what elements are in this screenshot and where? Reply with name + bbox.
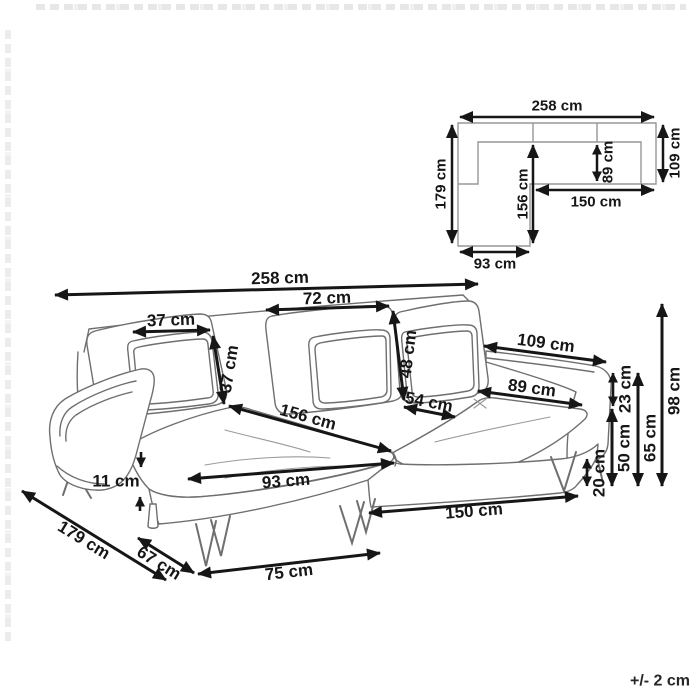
plan-dim-right-depth: 109 cm bbox=[663, 125, 684, 182]
plan-dim-left-depth: 179 cm bbox=[433, 125, 453, 243]
dim-back-cushion-width: 72 cm bbox=[266, 288, 389, 310]
dim-label-pillow-width: 37 cm bbox=[147, 310, 196, 331]
diagram-svg: 258 cm 72 cm 37 cm 37 cm 48 cm 54 cm bbox=[0, 0, 700, 700]
dim-armrest-height: 65 cm bbox=[638, 373, 660, 486]
plan-dim-seat-depth: 89 cm bbox=[597, 141, 617, 184]
dim-label-seat-height: 50 cm bbox=[615, 424, 634, 472]
dim-label-total-width: 258 cm bbox=[251, 268, 309, 289]
dim-label-chaise-side-depth: 67 cm bbox=[134, 542, 185, 584]
dim-front-leg-span: 75 cm bbox=[198, 553, 380, 584]
plan-dim-total-width: 258 cm bbox=[460, 98, 654, 118]
dim-label-base-front-width: 150 cm bbox=[445, 499, 504, 522]
middle-hairpin-legs bbox=[340, 499, 375, 543]
plan-label-chaise-length: 156 cm bbox=[515, 169, 532, 220]
plan-dim-chaise-width: 93 cm bbox=[460, 252, 529, 273]
dim-label-armrest-height: 65 cm bbox=[641, 414, 660, 462]
plan-label-left-depth: 179 cm bbox=[433, 159, 450, 210]
dim-total-depth: 179 cm bbox=[22, 491, 166, 580]
chaise-hairpin-legs bbox=[196, 516, 230, 566]
chaise-cylinder-leg bbox=[148, 504, 158, 528]
plan-label-total-width: 258 cm bbox=[532, 98, 583, 115]
dim-label-total-height: 98 cm bbox=[665, 367, 684, 415]
dim-label-front-leg-span: 75 cm bbox=[264, 560, 314, 584]
tolerance-note: +/- 2 cm bbox=[630, 673, 690, 690]
dim-label-total-depth: 179 cm bbox=[54, 517, 113, 563]
dim-total-height: 98 cm bbox=[662, 304, 684, 486]
plan-dim-right-seat-width: 150 cm bbox=[536, 190, 654, 211]
plan-view: 258 cm 109 cm 179 cm 156 cm 89 cm 150 cm bbox=[433, 98, 684, 273]
dim-armrest-above-seat: 23 cm bbox=[613, 365, 635, 413]
dim-seat-height: 50 cm bbox=[612, 409, 634, 486]
dim-label-chaise-front-width: 93 cm bbox=[261, 470, 311, 493]
dim-label-ground-clearance: 20 cm bbox=[590, 449, 609, 497]
dim-total-width: 258 cm bbox=[55, 268, 478, 295]
plan-label-right-depth: 109 cm bbox=[667, 128, 684, 179]
plan-label-chaise-width: 93 cm bbox=[474, 256, 517, 273]
dim-label-armrest-seat-gap: 11 cm bbox=[92, 472, 139, 491]
dim-label-pillow-height: 37 cm bbox=[216, 344, 242, 395]
dim-chaise-side-depth: 67 cm bbox=[134, 538, 194, 584]
plan-backrest-divisions bbox=[533, 123, 597, 142]
dim-label-armrest-above-seat: 23 cm bbox=[616, 365, 635, 413]
dim-ground-clearance: 20 cm bbox=[587, 449, 609, 497]
sofa-dimension-diagram: 258 cm 72 cm 37 cm 37 cm 48 cm 54 cm bbox=[0, 0, 700, 700]
plan-label-right-seat-width: 150 cm bbox=[571, 194, 622, 211]
plan-label-seat-depth: 89 cm bbox=[600, 141, 617, 184]
dim-label-back-cushion-width: 72 cm bbox=[303, 288, 352, 309]
